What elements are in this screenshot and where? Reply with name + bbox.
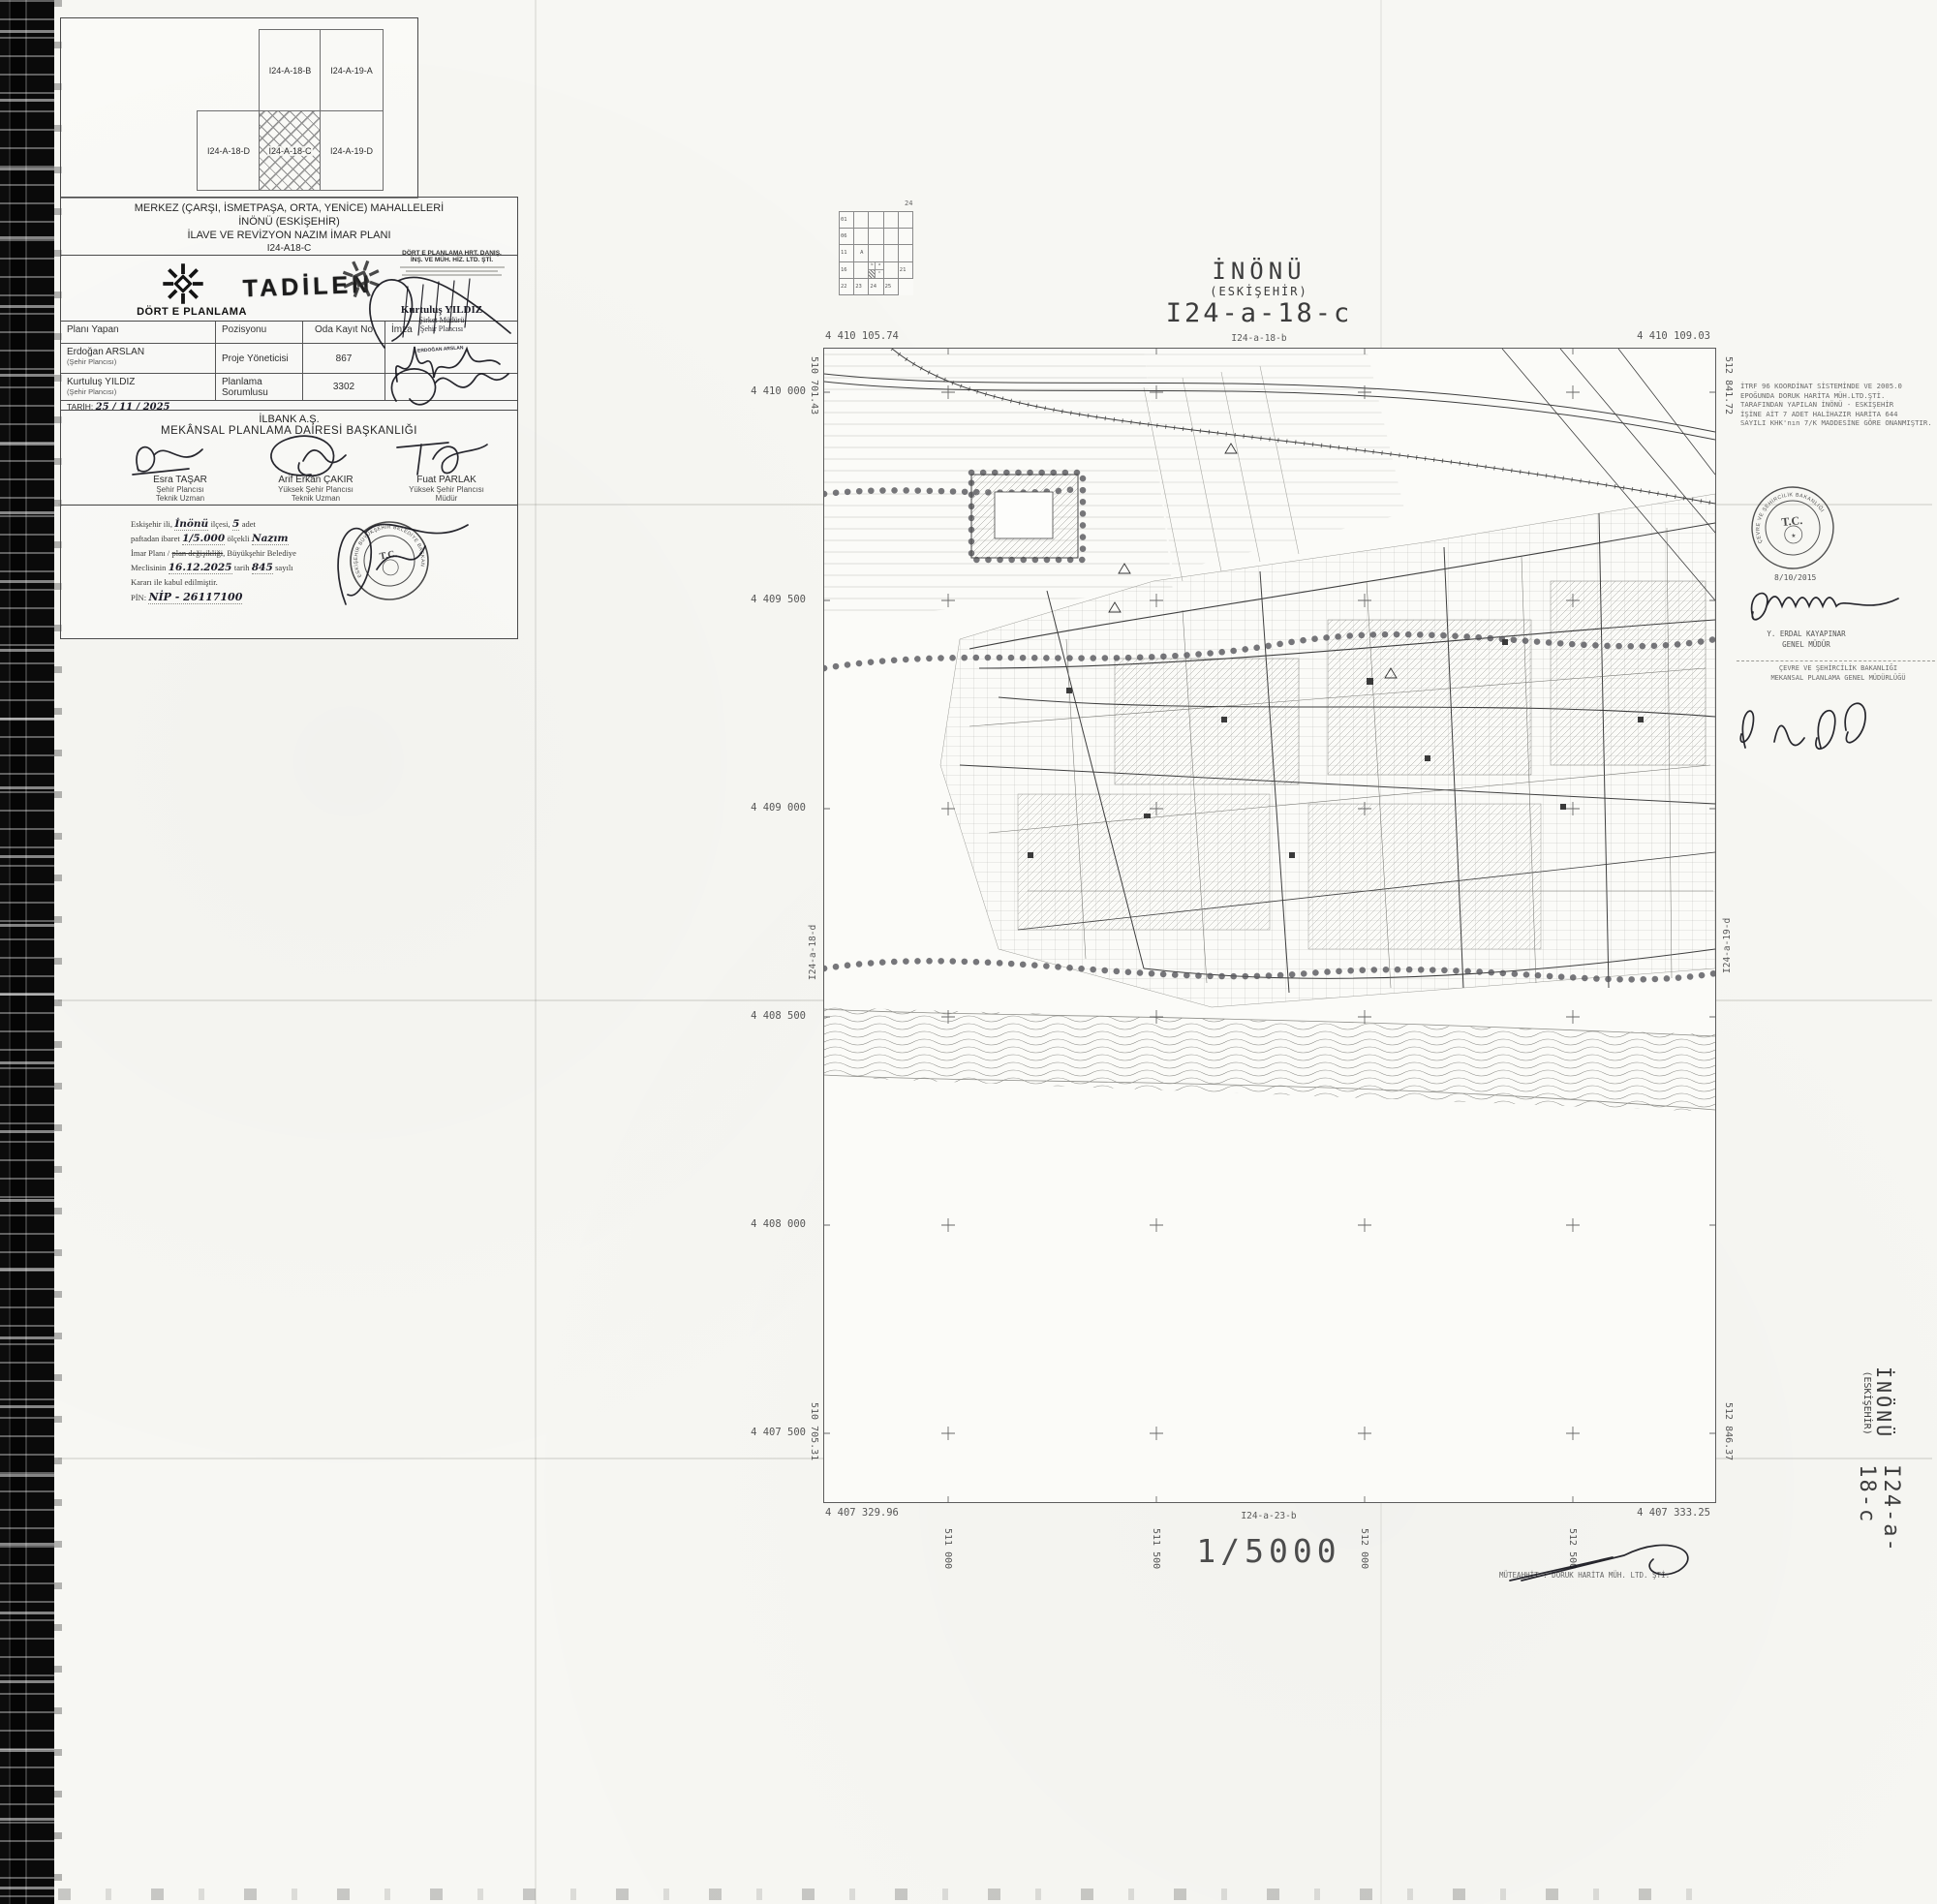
signer-name: Arif Erkan ÇAKIR: [243, 475, 388, 485]
neighbor-sheet-right: I24-a-19-d: [1722, 918, 1733, 973]
index-cell-label: I24-A-18-B: [269, 66, 312, 76]
signature-arif-erkan-cakir: [255, 430, 363, 478]
approval-print: İmar Planı /: [131, 548, 169, 558]
locator-bottom-label: 24: [869, 279, 883, 295]
corner-coordinate-br: 4 407 333.25: [1588, 1507, 1710, 1519]
ilbank-section: İLBANK A.Ş. MEKÂNSAL PLANLAMA DAİRESİ BA…: [61, 410, 517, 505]
ministry-seal: ÇEVRE VE ŞEHİRCİLİK BAKANLIĞI T.C. ★: [1745, 480, 1841, 576]
index-cell: I24-A-19-D: [320, 110, 384, 191]
plan-title-line: İLAVE VE REVİZYON NAZIM İMAR PLANI: [61, 229, 517, 242]
planner-title: (Şehir Plancısı): [67, 387, 209, 396]
index-cell-label: I24-A-19-A: [330, 66, 373, 76]
locator-sub-label: b: [869, 262, 876, 270]
northing-label: 4 407 500: [697, 1427, 806, 1438]
corner-coordinate-tl: 4 410 105.74: [825, 330, 899, 342]
margin-label-title: İNÖNÜ: [1873, 1367, 1896, 1439]
itrf-line: EPOĞUNDA DORUK HARİTA MÜH.LTD.ŞTİ.: [1740, 391, 1932, 401]
easting-label: 511 000: [942, 1528, 953, 1569]
planner-position: Proje Yöneticisi: [216, 344, 303, 373]
index-cell-label: I24-A-18-C: [267, 146, 312, 156]
approval-handwriting: 845: [252, 562, 273, 574]
company-stamp-line1: DÖRT E PLANLAMA HRT. DANIŞ.: [386, 250, 517, 257]
edge-coordinate-bl: 510 705.31: [809, 1402, 819, 1460]
locator-row-label: 06: [840, 229, 854, 245]
corner-coordinate-tr: 4 410 109.03: [1588, 330, 1710, 342]
northing-label: 4 409 000: [697, 802, 806, 814]
northing-label: 4 408 500: [697, 1010, 806, 1022]
locator-marked-cell: A: [854, 245, 869, 261]
planner-title: (Şehir Plancısı): [67, 357, 209, 366]
sheet-margin-label: İNÖNÜ (ESKİŞEHİR) I24-a-18-c: [1854, 1367, 1904, 1580]
locator-sub-label: c: [876, 270, 882, 278]
approval-print: PİN:: [131, 593, 146, 602]
company-stamp-line2: İNŞ. VE MÜH. HİZ. LTD. ŞTİ.: [386, 257, 517, 263]
ministry-seal-center-text: T.C.: [1781, 513, 1803, 529]
neighbor-sheet-top: I24-a-18-b: [1201, 333, 1317, 344]
planner-name: Kurtuluş YILDIZ: [67, 377, 209, 387]
map-heading: İNÖNÜ (ESKİŞEHİR) I24-a-18-c: [1114, 258, 1404, 328]
approval-print: ilçesi,: [211, 519, 231, 529]
signature-erdal-kayapinar: [1741, 581, 1904, 631]
margin-label-sheet-number: I24-a-18-c: [1855, 1464, 1903, 1580]
plan-title-line: İNÖNÜ (ESKİŞEHİR): [61, 215, 517, 229]
index-cell-highlighted: I24-A-18-C: [259, 110, 322, 191]
approval-handwriting: 1/5.000: [182, 533, 225, 545]
signature-approval: [321, 507, 476, 622]
dort-e-planlama-logo-icon: [161, 261, 205, 306]
firm-row: DÖRT E PLANLAMA TADİLEN DÖRT E PLANLAMA …: [61, 255, 517, 321]
map-subtitle: (ESKİŞEHİR): [1114, 285, 1404, 298]
ministry-signer-role: GENEL MÜDÜR: [1743, 640, 1869, 649]
locator-bottom-label: 21: [899, 262, 913, 279]
ministry-line: MEKANSAL PLANLAMA GENEL MÜDÜRLÜĞÜ: [1737, 674, 1937, 684]
itrf-note: İTRF 96 KOORDİNAT SİSTEMİNDE VE 2005.0 E…: [1740, 382, 1932, 428]
signer-name: Esra TAŞAR: [117, 475, 243, 485]
approval-print: tarih: [234, 563, 250, 572]
locator-bottom-label: 23: [854, 279, 869, 295]
index-cell-label: I24-A-18-D: [207, 146, 250, 156]
approval-print: adet: [242, 519, 256, 529]
scan-bottom-noise: [58, 1889, 1705, 1900]
signer-role: Yüksek Şehir Plancısı: [243, 485, 388, 494]
scale-label: 1/5000: [1143, 1532, 1395, 1570]
locator-row-label: 16: [840, 262, 854, 279]
dort-e-planlama-logo-text: DÖRT E PLANLAMA: [114, 306, 269, 318]
approval-pin-number: NİP - 26117100: [148, 591, 242, 604]
edge-coordinate-tl: 510 701.43: [809, 356, 819, 415]
signature-fuat-parlak: [392, 434, 501, 476]
ministry-office-note: ÇEVRE VE ŞEHİRCİLİK BAKANLIĞI MEKANSAL P…: [1737, 660, 1937, 683]
locator-grid: 01 06 11 A 16 b a c 21 22 23 24 25: [839, 211, 913, 295]
locator-corner-label: 24: [905, 200, 912, 207]
table-header-plani-yapan: Planı Yapan: [61, 322, 216, 343]
corner-coordinate-bl: 4 407 329.96: [825, 1507, 899, 1519]
ilbank-signer: Arif Erkan ÇAKIR Yüksek Şehir Plancısı T…: [243, 475, 388, 503]
scanned-plan-sheet: I24-A-18-B I24-A-19-A I24-A-18-D I24-A-1…: [0, 0, 1937, 1904]
itrf-line: İTRF 96 KOORDİNAT SİSTEMİNDE VE 2005.0: [1740, 382, 1932, 391]
approval-handwriting: İnönü: [174, 518, 208, 531]
sheet-index-box: I24-A-18-B I24-A-19-A I24-A-18-D I24-A-1…: [60, 17, 418, 199]
approval-section: Eskişehir ili, İnönü ilçesi, 5 adet paft…: [61, 505, 517, 638]
northing-label: 4 408 000: [697, 1218, 806, 1230]
fold-crease: [535, 0, 537, 1904]
signer-role: Teknik Uzman: [243, 494, 388, 503]
edge-coordinate-tr: 512 841.72: [1723, 356, 1734, 415]
northing-label: 4 409 500: [697, 594, 806, 605]
ilbank-signer: Esra TAŞAR Şehir Plancısı Teknik Uzman: [117, 475, 243, 503]
approval-print: Eskişehir ili,: [131, 519, 172, 529]
planner-reg-no: 3302: [303, 374, 385, 400]
approval-print: Meclisinin: [131, 563, 166, 572]
ministry-signer-name: Y. ERDAL KAYAPINAR: [1743, 630, 1869, 638]
ministry-seal-star: ★: [1791, 533, 1797, 540]
map-title: İNÖNÜ: [1114, 258, 1404, 285]
approval-handwriting: Nazım: [252, 533, 288, 545]
signer-role: Teknik Uzman: [117, 494, 243, 503]
planner-position: Planlama Sorumlusu: [216, 374, 303, 400]
ilbank-line1: İLBANK A.Ş.: [61, 411, 517, 425]
itrf-line: SAYILI KHK'nın 7/K MADDESİNE GÖRE ONANMI…: [1740, 418, 1932, 428]
approval-print: paftadan ibaret: [131, 534, 180, 543]
locator-sub-label: a: [876, 262, 882, 270]
signature-kurtulus-yildiz: [381, 362, 516, 413]
locator-row-label: 11: [840, 245, 854, 261]
index-cell: I24-A-18-D: [197, 110, 261, 191]
edge-coordinate-br: 512 846.37: [1723, 1402, 1734, 1460]
signer-role: Şehir Plancısı: [117, 485, 243, 494]
locator-bottom-label: 22: [840, 279, 854, 295]
locator-bottom-label: 25: [884, 279, 899, 295]
neighbor-sheet-left: I24-a-18-d: [808, 925, 818, 980]
index-cell: I24-A-18-B: [259, 29, 322, 112]
locator-sub-hatch: [869, 270, 876, 278]
neighbor-sheet-bottom: I24-a-23-b: [1211, 1511, 1327, 1521]
ministry-line: ÇEVRE VE ŞEHİRCİLİK BAKANLIĞI: [1737, 664, 1937, 674]
approval-print-struck: plan değişikliği: [172, 548, 224, 558]
signer-name: Fuat PARLAK: [386, 475, 507, 485]
approval-print: , Büyükşehir Belediye: [223, 548, 296, 558]
itrf-line: TARAFINDAN YAPILAN İNÖNÜ - ESKİŞEHİR: [1740, 400, 1932, 410]
plan-title-line: MERKEZ (ÇARŞI, İSMETPAŞA, ORTA, YENİCE) …: [61, 201, 517, 215]
ilbank-signer: Fuat PARLAK Yüksek Şehir Plancısı Müdür: [386, 475, 507, 503]
title-block-panel: MERKEZ (ÇARŞI, İSMETPAŞA, ORTA, YENİCE) …: [60, 197, 518, 639]
locator-row-label: 01: [840, 212, 854, 229]
signature-ministry-initials: [1732, 684, 1877, 765]
approval-handwriting: 16.12.2025: [169, 562, 232, 574]
signer-role: Müdür: [386, 494, 507, 503]
northing-label: 4 410 000: [697, 385, 806, 397]
signature-esra-tasar: [125, 438, 214, 476]
map-sheet-number: I24-a-18-c: [1114, 298, 1404, 328]
approval-handwriting: 5: [232, 518, 239, 531]
table-header-pozisyonu: Pozisyonu: [216, 322, 303, 343]
itrf-line: İŞİNE AİT 7 ADET HALİHAZIR HARİTA 644: [1740, 410, 1932, 419]
margin-label-subtitle: (ESKİŞEHİR): [1862, 1367, 1873, 1439]
approval-print: Kararı ile kabul edilmiştir.: [131, 577, 218, 587]
index-cell: I24-A-19-A: [320, 29, 384, 112]
signature-contractor: [1496, 1530, 1719, 1590]
plan-title-section: MERKEZ (ÇARŞI, İSMETPAŞA, ORTA, YENİCE) …: [61, 198, 517, 255]
planner-name: Erdoğan ARSLAN: [67, 347, 209, 357]
scan-edge-strip: [0, 0, 54, 1904]
approval-print: ölçekli: [228, 534, 250, 543]
signer-role: Yüksek Şehir Plancısı: [386, 485, 507, 494]
index-cell-label: I24-A-19-D: [330, 146, 373, 156]
locator-subcell: b a c: [869, 262, 883, 279]
approval-print: sayılı: [275, 563, 292, 572]
map-drawing: [824, 349, 1715, 1502]
map-frame: [823, 348, 1716, 1503]
